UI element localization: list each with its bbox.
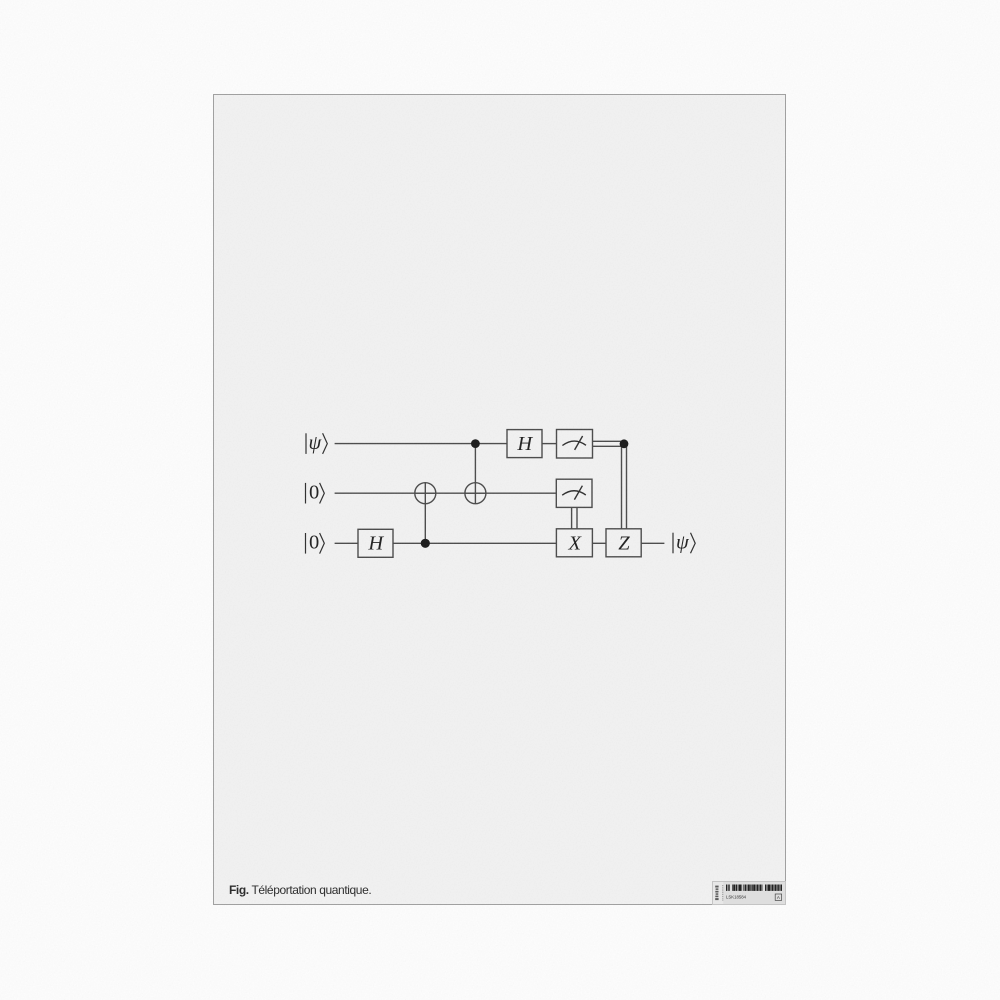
svg-text:0: 0 [309,482,319,504]
svg-text:LSK18584: LSK18584 [726,895,747,900]
svg-text:ψ: ψ [309,432,323,454]
svg-text:H: H [516,433,533,455]
svg-text:Z: Z [618,533,630,555]
svg-text:H: H [367,533,384,555]
svg-text:A: A [777,895,780,900]
svg-text:0: 0 [309,532,319,554]
svg-text:X: X [568,533,583,555]
svg-text:ψ: ψ [676,532,690,554]
